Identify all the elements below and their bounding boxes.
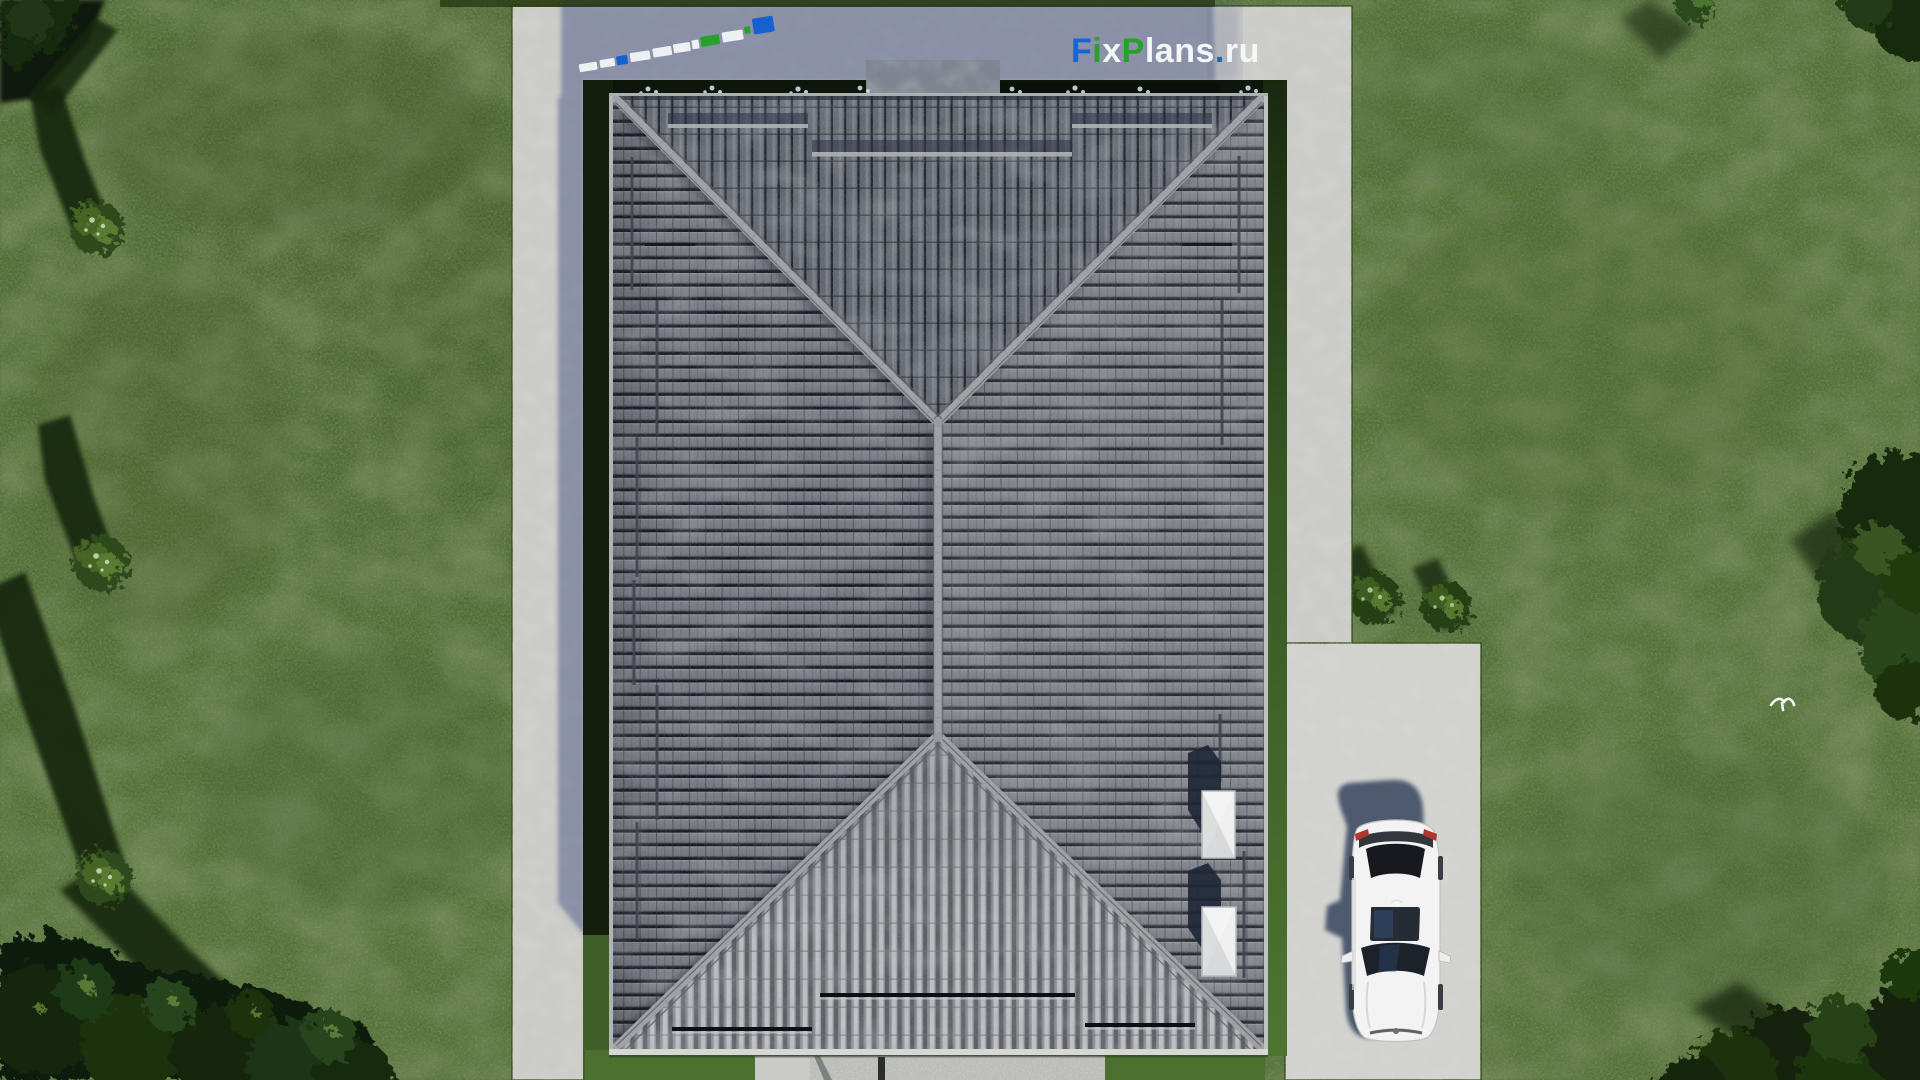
svg-text:FixPlans.ru: FixPlans.ru (1071, 32, 1260, 70)
